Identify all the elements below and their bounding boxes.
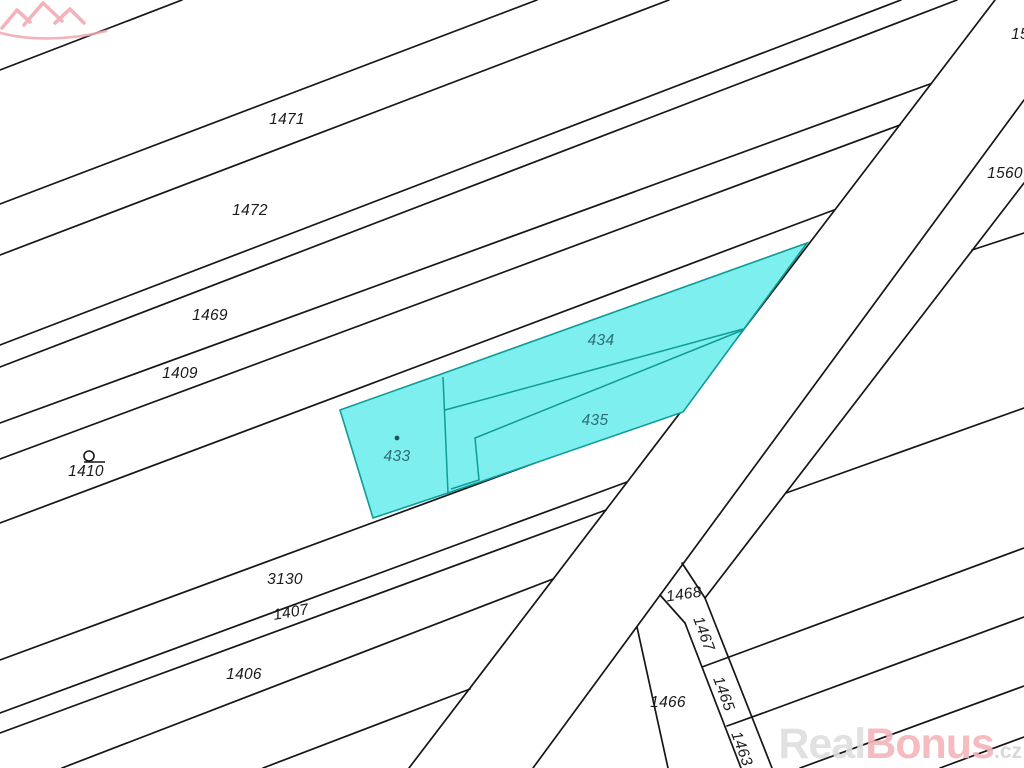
parcel-label-1409: 1409 xyxy=(162,365,198,383)
parcel-label-1469: 1469 xyxy=(192,307,228,325)
parcel-label-1560: 1560 xyxy=(987,165,1023,183)
parcel-label-1468: 1468 xyxy=(665,584,703,607)
watermark-bonus: Bonus xyxy=(865,720,994,768)
parcel-label-434[interactable]: 434 xyxy=(588,332,615,350)
parcel-label-433[interactable]: 433 xyxy=(384,448,411,466)
parcel-label-1472: 1472 xyxy=(232,202,268,220)
watermark-real: Real xyxy=(778,720,865,768)
parcel-label-1406: 1406 xyxy=(226,666,262,684)
parcel-label-435[interactable]: 435 xyxy=(582,412,609,430)
watermark-tld: .cz xyxy=(994,740,1022,763)
parcel-label-1407: 1407 xyxy=(272,601,310,625)
cadastral-map: 1471147214691409141031301407140615156014… xyxy=(0,0,1024,768)
realbonus-roof-logo-icon xyxy=(0,0,108,42)
label-layer: 1471147214691409141031301407140615156014… xyxy=(0,0,1024,768)
parcel-label-1466: 1466 xyxy=(650,694,686,712)
parcel-label-15: 15 xyxy=(1011,26,1024,44)
parcel-label-1410: 1410 xyxy=(68,463,104,481)
parcel-label-1465: 1465 xyxy=(708,674,737,714)
parcel-label-3130: 3130 xyxy=(267,571,303,589)
parcel-label-1467: 1467 xyxy=(688,614,717,654)
parcel-label-1463: 1463 xyxy=(726,729,755,768)
watermark: RealBonus.cz xyxy=(778,723,1022,766)
parcel-label-1471: 1471 xyxy=(269,111,305,129)
